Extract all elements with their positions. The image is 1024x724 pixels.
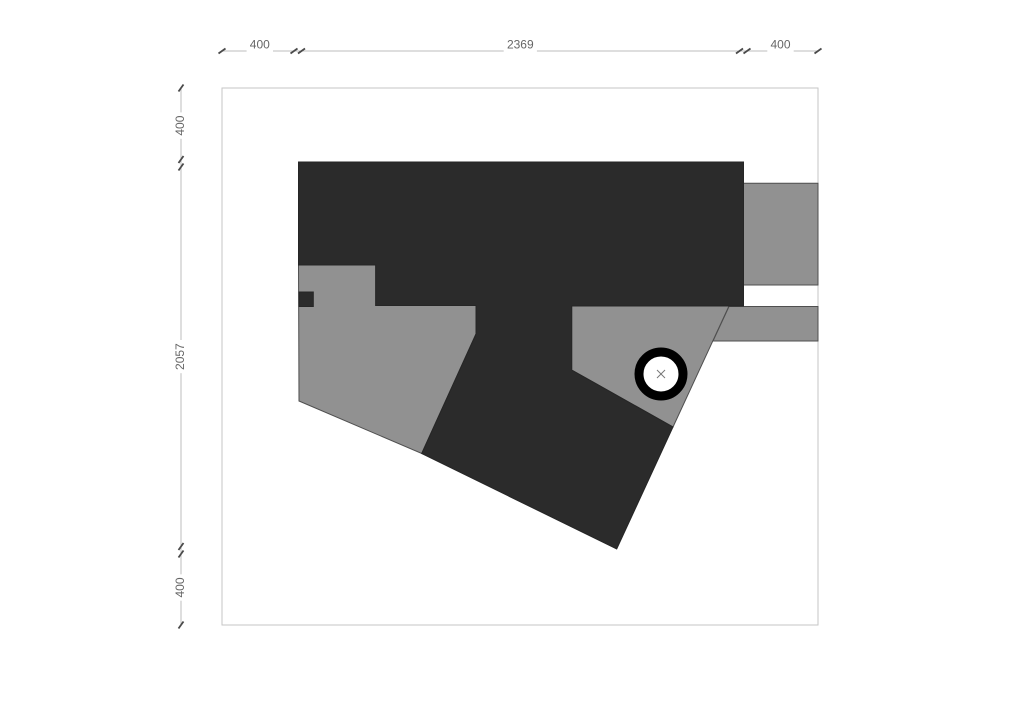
small-dark-block [299,292,313,307]
right-wing-lower [713,307,818,342]
dimension-label: 2057 [173,343,187,370]
plan-view-stage: 40023694004002057400 [0,0,1024,724]
dimension-label: 400 [173,115,187,135]
dimension-label: 400 [770,38,790,52]
plan-canvas: 40023694004002057400 [0,0,1024,724]
dimension-label: 2369 [507,38,534,52]
dimension-label: 400 [173,577,187,597]
right-wing-upper [744,183,819,285]
dimension-label: 400 [250,38,270,52]
